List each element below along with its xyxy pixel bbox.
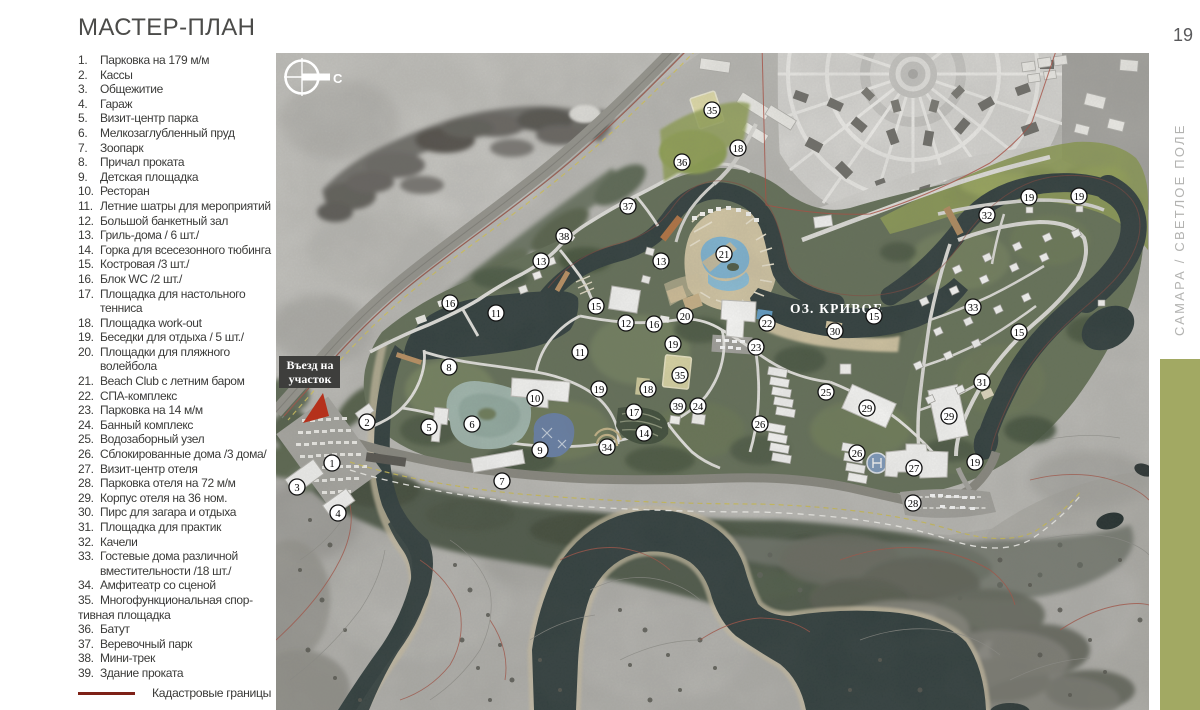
svg-text:20: 20: [680, 312, 691, 323]
svg-text:4: 4: [335, 509, 341, 520]
svg-text:8: 8: [446, 363, 451, 374]
svg-text:26: 26: [755, 420, 766, 431]
svg-text:2: 2: [364, 418, 369, 429]
svg-text:11: 11: [491, 309, 501, 320]
svg-text:12: 12: [621, 319, 632, 330]
svg-text:29: 29: [944, 412, 955, 423]
svg-text:35: 35: [707, 106, 718, 117]
svg-text:9: 9: [537, 446, 542, 457]
svg-text:19: 19: [594, 385, 605, 396]
svg-text:35: 35: [675, 371, 686, 382]
svg-text:15: 15: [869, 312, 880, 323]
svg-text:18: 18: [733, 144, 744, 155]
svg-text:15: 15: [1014, 328, 1025, 339]
svg-text:19: 19: [1024, 193, 1035, 204]
svg-text:1: 1: [329, 459, 334, 470]
svg-text:38: 38: [559, 232, 570, 243]
svg-text:15: 15: [591, 302, 602, 313]
svg-text:33: 33: [968, 303, 979, 314]
svg-text:11: 11: [575, 348, 585, 359]
svg-text:10: 10: [530, 394, 541, 405]
svg-text:37: 37: [623, 202, 634, 213]
svg-text:39: 39: [673, 402, 684, 413]
svg-text:С: С: [333, 71, 343, 86]
svg-text:32: 32: [982, 211, 993, 222]
svg-text:29: 29: [862, 404, 873, 415]
svg-text:26: 26: [852, 449, 863, 460]
svg-text:18: 18: [643, 385, 654, 396]
svg-text:5: 5: [426, 423, 431, 434]
svg-text:28: 28: [908, 499, 919, 510]
svg-text:30: 30: [830, 327, 841, 338]
svg-text:7: 7: [499, 477, 504, 488]
svg-text:19: 19: [668, 340, 679, 351]
svg-text:13: 13: [536, 257, 547, 268]
svg-text:16: 16: [445, 299, 456, 310]
svg-text:16: 16: [649, 320, 660, 331]
svg-text:27: 27: [909, 464, 920, 475]
svg-text:36: 36: [677, 158, 688, 169]
svg-text:13: 13: [656, 257, 667, 268]
svg-text:3: 3: [294, 483, 299, 494]
svg-text:21: 21: [719, 250, 730, 261]
svg-text:участок: участок: [289, 372, 332, 386]
svg-text:25: 25: [821, 388, 832, 399]
svg-text:31: 31: [977, 378, 988, 389]
svg-text:6: 6: [469, 420, 474, 431]
svg-text:14: 14: [639, 429, 650, 440]
svg-text:17: 17: [629, 408, 640, 419]
svg-text:34: 34: [602, 443, 613, 454]
svg-text:Въезд на: Въезд на: [287, 358, 334, 372]
svg-text:24: 24: [693, 402, 704, 413]
svg-text:22: 22: [762, 319, 773, 330]
svg-text:23: 23: [751, 343, 762, 354]
svg-text:19: 19: [1074, 192, 1085, 203]
svg-text:19: 19: [970, 458, 981, 469]
